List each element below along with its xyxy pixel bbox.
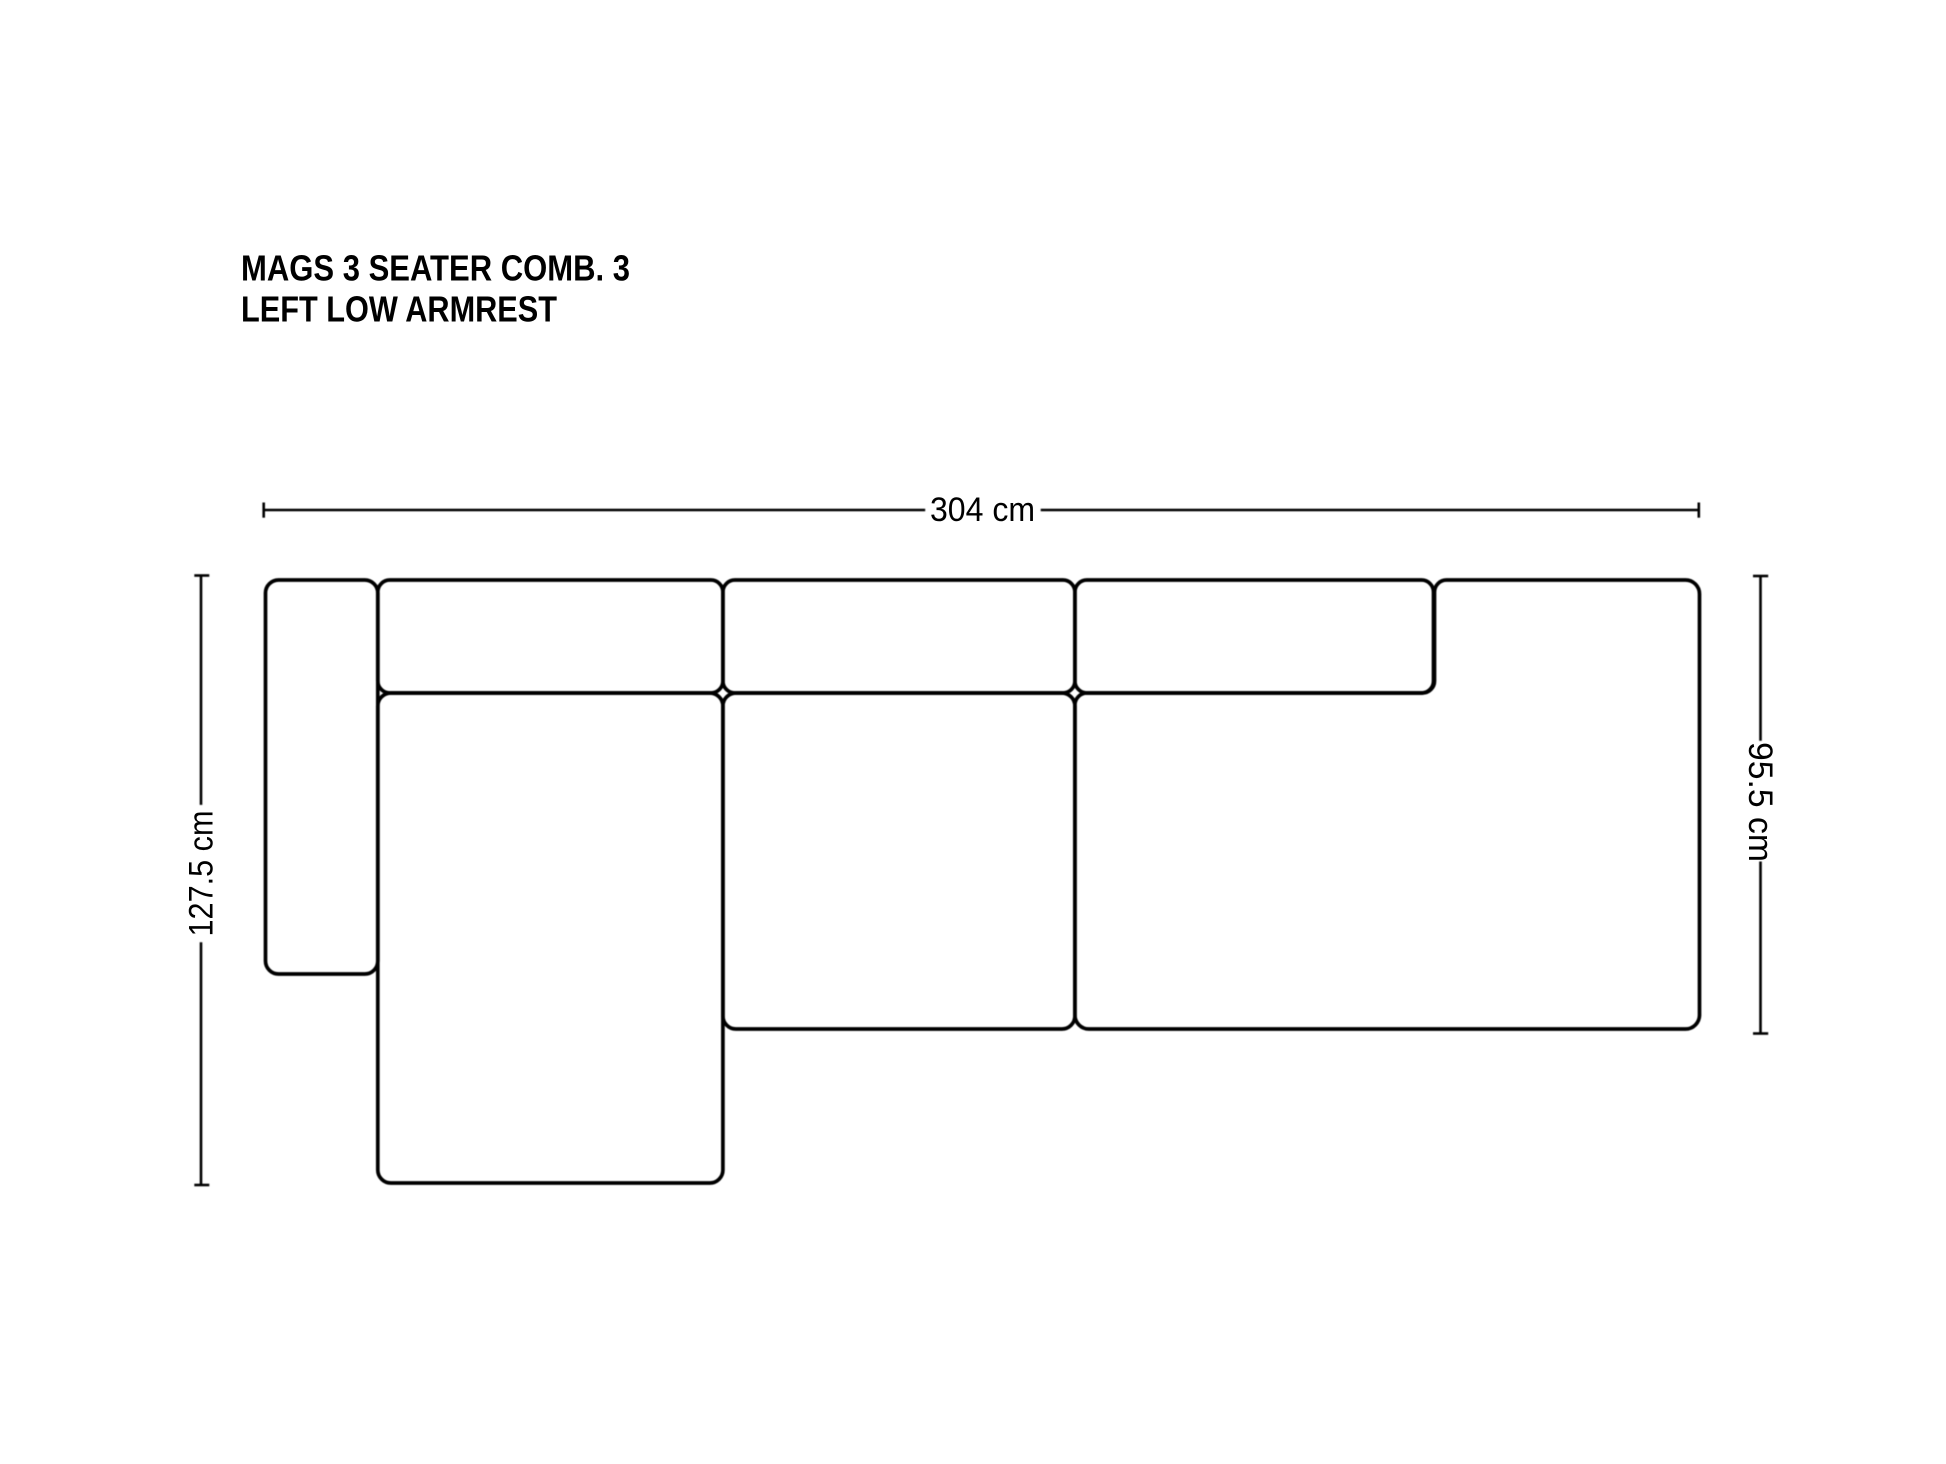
svg-text:304 cm: 304 cm bbox=[930, 491, 1035, 529]
svg-text:127.5 cm: 127.5 cm bbox=[183, 811, 221, 937]
svg-text:LEFT LOW ARMREST: LEFT LOW ARMREST bbox=[241, 289, 557, 330]
svg-text:95.5 cm: 95.5 cm bbox=[1741, 742, 1779, 862]
svg-text:MAGS 3 SEATER COMB. 3: MAGS 3 SEATER COMB. 3 bbox=[241, 248, 630, 289]
